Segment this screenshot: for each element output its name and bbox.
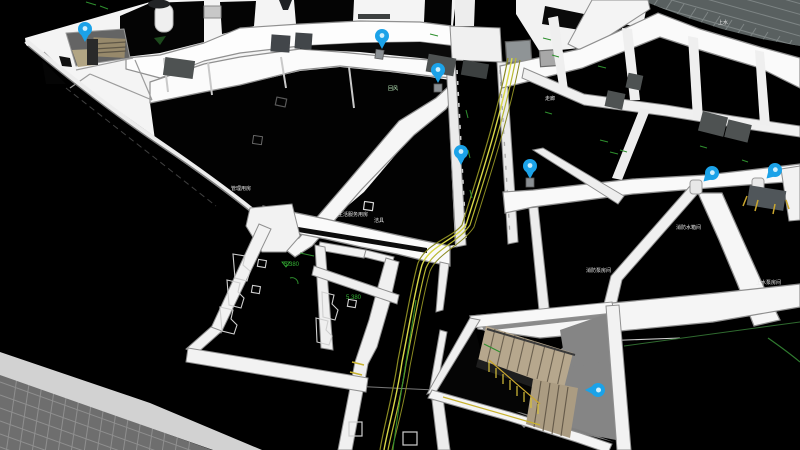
svg-text:管理用房: 管理用房 [231, 185, 251, 192]
svg-text:走廊: 走廊 [545, 95, 555, 102]
svg-text:生活服务用房: 生活服务用房 [338, 211, 368, 218]
svg-text:消防泵房间: 消防泵房间 [586, 267, 611, 274]
svg-text:上水: 上水 [718, 19, 728, 26]
svg-text:回风: 回风 [388, 86, 398, 92]
svg-text:消防水箱间: 消防水箱间 [676, 224, 701, 231]
svg-text:5.380: 5.380 [346, 295, 362, 301]
svg-text:上水泵房间: 上水泵房间 [756, 279, 781, 286]
svg-text:洁具: 洁具 [374, 217, 384, 224]
